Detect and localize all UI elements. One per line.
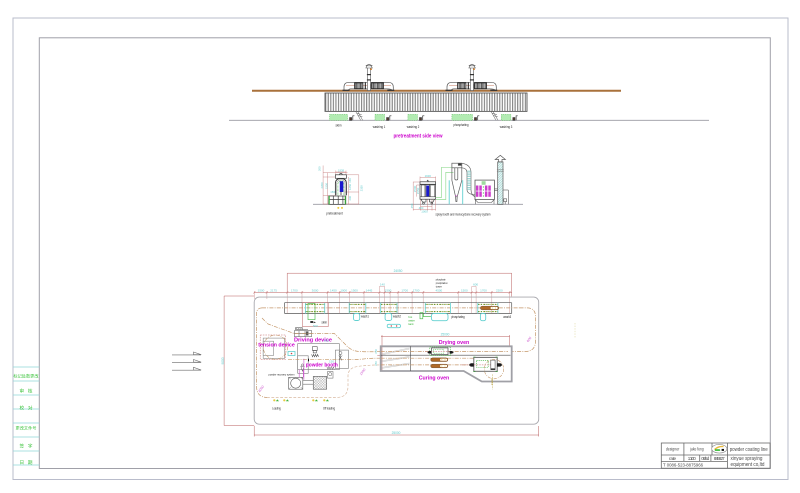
svg-text:9000: 9000 xyxy=(221,357,225,364)
svg-text:Off loading: Off loading xyxy=(323,406,335,410)
svg-text:1000: 1000 xyxy=(340,288,347,292)
svg-text:1450: 1450 xyxy=(330,288,337,292)
svg-text:1000: 1000 xyxy=(490,378,494,385)
svg-text:1445: 1445 xyxy=(366,288,373,292)
svg-text:1700: 1700 xyxy=(413,288,420,292)
svg-text:签 字: 签 字 xyxy=(19,443,32,449)
svg-text:Loading: Loading xyxy=(272,406,281,410)
svg-text:650: 650 xyxy=(374,349,378,354)
svg-text:skim: skim xyxy=(336,124,342,128)
svg-text:885827: 885827 xyxy=(714,456,725,461)
svg-text:2175: 2175 xyxy=(270,288,277,292)
svg-text:powder coating line: powder coating line xyxy=(730,447,768,453)
svg-text:wash1: wash1 xyxy=(361,315,369,319)
svg-text:1550: 1550 xyxy=(324,183,328,189)
svg-text:phosphating: phosphating xyxy=(451,315,465,319)
svg-text:150: 150 xyxy=(329,360,334,364)
svg-text:washing 2: washing 2 xyxy=(407,125,420,129)
svg-text:powder recovery system: powder recovery system xyxy=(269,372,296,376)
svg-text:washing 1: washing 1 xyxy=(373,125,386,129)
svg-text:3000: 3000 xyxy=(312,288,319,292)
svg-text:150: 150 xyxy=(348,178,352,183)
svg-text:T 0086-523-8875966: T 0086-523-8875966 xyxy=(663,462,703,467)
svg-text:4500: 4500 xyxy=(436,288,443,292)
svg-text:450: 450 xyxy=(410,203,414,208)
svg-text:spray booth and monocyclone re: spray booth and monocyclone recovery sys… xyxy=(436,213,491,217)
svg-text:500: 500 xyxy=(313,324,318,328)
svg-text:1700: 1700 xyxy=(480,288,487,292)
svg-text:650: 650 xyxy=(374,361,378,366)
svg-text:审 核: 审 核 xyxy=(19,387,32,394)
svg-text:25000: 25000 xyxy=(392,431,401,435)
svg-text:140: 140 xyxy=(380,283,385,287)
svg-text:2350: 2350 xyxy=(360,185,364,191)
svg-text:pretreatment: pretreatment xyxy=(326,212,343,216)
svg-text:600: 600 xyxy=(324,338,329,342)
svg-text:rate: rate xyxy=(669,456,676,461)
svg-text:2200: 2200 xyxy=(496,288,503,292)
svg-text:1938: 1938 xyxy=(338,168,344,172)
svg-text:1500: 1500 xyxy=(351,288,358,292)
svg-text:1930: 1930 xyxy=(425,174,432,178)
svg-text:200: 200 xyxy=(348,195,352,200)
svg-text:tension device: tension device xyxy=(258,342,295,348)
svg-text:1500: 1500 xyxy=(258,288,265,292)
svg-text:25000: 25000 xyxy=(441,333,450,337)
svg-text:1000: 1000 xyxy=(421,210,428,214)
svg-text:1700: 1700 xyxy=(291,288,298,292)
svg-text:washing 3: washing 3 xyxy=(500,125,513,129)
svg-text:1250: 1250 xyxy=(348,184,352,190)
svg-text:skim: skim xyxy=(322,321,328,325)
svg-text:tank: tank xyxy=(408,322,414,326)
svg-text:2350: 2350 xyxy=(320,182,324,188)
svg-text:200: 200 xyxy=(318,166,322,171)
svg-text:1500: 1500 xyxy=(461,288,468,292)
svg-text:Drying oven: Drying oven xyxy=(439,340,470,346)
svg-text:标记处数更改: 标记处数更改 xyxy=(13,373,39,380)
svg-text:更改文件号: 更改文件号 xyxy=(16,424,37,431)
svg-text:600: 600 xyxy=(473,283,478,287)
svg-text:designer: designer xyxy=(666,447,680,452)
svg-text:1550: 1550 xyxy=(416,187,420,194)
svg-text:wash2: wash2 xyxy=(393,315,401,319)
svg-text:1:100: 1:100 xyxy=(688,456,696,461)
svg-text:1500: 1500 xyxy=(385,288,392,292)
svg-text:校 对: 校 对 xyxy=(19,404,32,411)
svg-text:06/5d: 06/5d xyxy=(701,456,709,461)
svg-text:1700: 1700 xyxy=(401,288,408,292)
svg-text:jake feng: jake feng xyxy=(690,447,705,452)
svg-text:pretreatment side view: pretreatment side view xyxy=(394,134,443,140)
svg-text:equipment co,ltd: equipment co,ltd xyxy=(731,462,765,468)
svg-text:24050: 24050 xyxy=(394,269,403,273)
svg-text:phosphating: phosphating xyxy=(454,123,469,127)
svg-text:wash3: wash3 xyxy=(503,315,511,319)
svg-text:Curing oven: Curing oven xyxy=(419,376,450,382)
